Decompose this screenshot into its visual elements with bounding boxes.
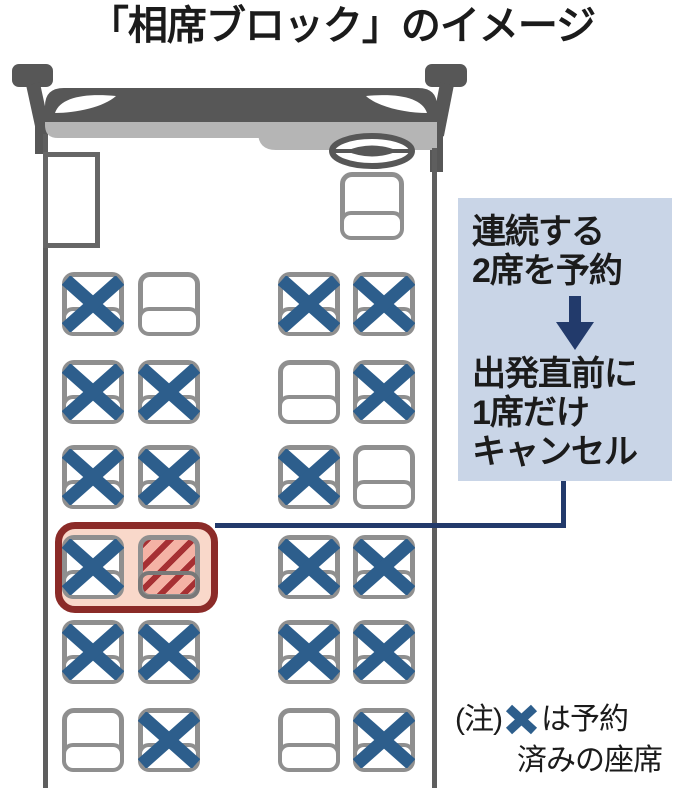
seat-r6c2-reserved: [138, 708, 200, 772]
seat-cushion: [62, 743, 124, 772]
seat-r4c3-reserved: [278, 535, 340, 599]
seat-r1c1-reserved: [62, 272, 124, 336]
reserved-x-icon: [138, 712, 200, 768]
reserved-x-icon: [353, 624, 415, 680]
callout-step2-line2: 1席だけ: [472, 394, 672, 433]
seat-r1c4-reserved: [353, 272, 415, 336]
callout-step2-line3: キャンセル: [472, 433, 672, 472]
footnote-after-icon: は予約: [541, 699, 628, 740]
reserved-x-icon: [353, 712, 415, 768]
seat-r2c4-reserved: [353, 360, 415, 424]
page-title: 「相席ブロック」のイメージ: [0, 2, 684, 50]
seat-cushion: [138, 571, 200, 599]
reserved-x-icon: [505, 704, 538, 735]
callout-box: 連続する 2席を予約 出発直前に 1席だけ キャンセル: [458, 198, 672, 481]
seat-r5c1-reserved: [62, 620, 124, 684]
reserved-x-icon: [138, 449, 200, 505]
seat-r1c3-reserved: [278, 272, 340, 336]
callout-step1-line2: 2席を予約: [472, 252, 672, 291]
seat-cushion: [278, 743, 340, 772]
seat-r2c3-empty: [278, 360, 340, 424]
seat-cushion: [138, 307, 200, 336]
seat-r3c2-reserved: [138, 445, 200, 509]
seat-r6c1-empty: [62, 708, 124, 772]
callout-step1-line1: 連続する: [472, 213, 672, 252]
callout-connector-line: [215, 481, 566, 528]
seat-r2c2-reserved: [138, 360, 200, 424]
reserved-x-icon: [62, 364, 124, 420]
footnote: (注) は予約 済みの座席: [455, 699, 662, 781]
seat-r4c4-reserved: [353, 535, 415, 599]
seat-r3c1-reserved: [62, 445, 124, 509]
reserved-x-icon: [278, 276, 340, 332]
seat-cushion: [340, 211, 404, 240]
reserved-x-icon: [353, 539, 415, 595]
seat-r6c4-reserved: [353, 708, 415, 772]
bus-door-area: [43, 152, 100, 248]
reserved-x-icon: [62, 624, 124, 680]
seat-r5c2-reserved: [138, 620, 200, 684]
seat-r5c3-reserved: [278, 620, 340, 684]
reserved-x-icon: [62, 276, 124, 332]
reserved-x-icon: [138, 624, 200, 680]
footnote-line1: (注) は予約: [455, 699, 662, 740]
reserved-x-icon: [62, 539, 124, 595]
windshield-icon: [45, 88, 437, 124]
footnote-line2: 済みの座席: [517, 740, 662, 781]
seat-r1c2-empty: [138, 272, 200, 336]
seat-r4c2-canceled: [138, 535, 200, 599]
seat-r6c3-empty: [278, 708, 340, 772]
steering-wheel-icon: [332, 136, 412, 166]
seat-r4c1-reserved: [62, 535, 124, 599]
seat-r2c1-reserved: [62, 360, 124, 424]
driver-seat: [340, 172, 404, 240]
reserved-x-icon: [62, 449, 124, 505]
reserved-x-icon: [353, 364, 415, 420]
callout-step2-line1: 出発直前に: [472, 355, 672, 394]
bus-right-wall: [432, 148, 437, 788]
down-arrow-icon: [556, 296, 594, 350]
aiseki-block-infographic: 「相席ブロック」のイメージ: [0, 0, 684, 800]
reserved-x-icon: [353, 276, 415, 332]
seat-cushion: [278, 395, 340, 424]
footnote-prefix: (注): [455, 699, 502, 740]
reserved-x-icon: [138, 364, 200, 420]
reserved-x-icon: [278, 539, 340, 595]
reserved-x-icon: [278, 624, 340, 680]
seat-r5c4-reserved: [353, 620, 415, 684]
